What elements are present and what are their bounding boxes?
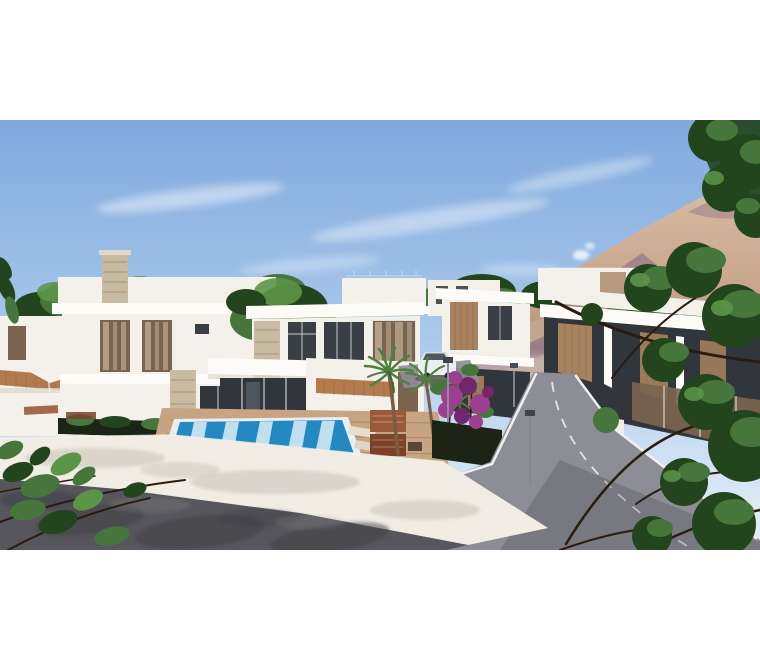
page: { "meta": { "image_type": "real-estate-a… [0, 0, 760, 670]
render-scene [0, 120, 760, 550]
sun-lounger [66, 412, 96, 419]
patio-chair [370, 434, 406, 456]
lamp-head [525, 410, 535, 416]
curtained-window [142, 320, 172, 372]
stone-chimney [102, 253, 128, 305]
curtained-window [100, 320, 130, 372]
lamp-head [443, 357, 453, 363]
patio-chair [370, 410, 406, 432]
villa-render-photo [0, 120, 760, 550]
lamp-head [510, 363, 518, 368]
